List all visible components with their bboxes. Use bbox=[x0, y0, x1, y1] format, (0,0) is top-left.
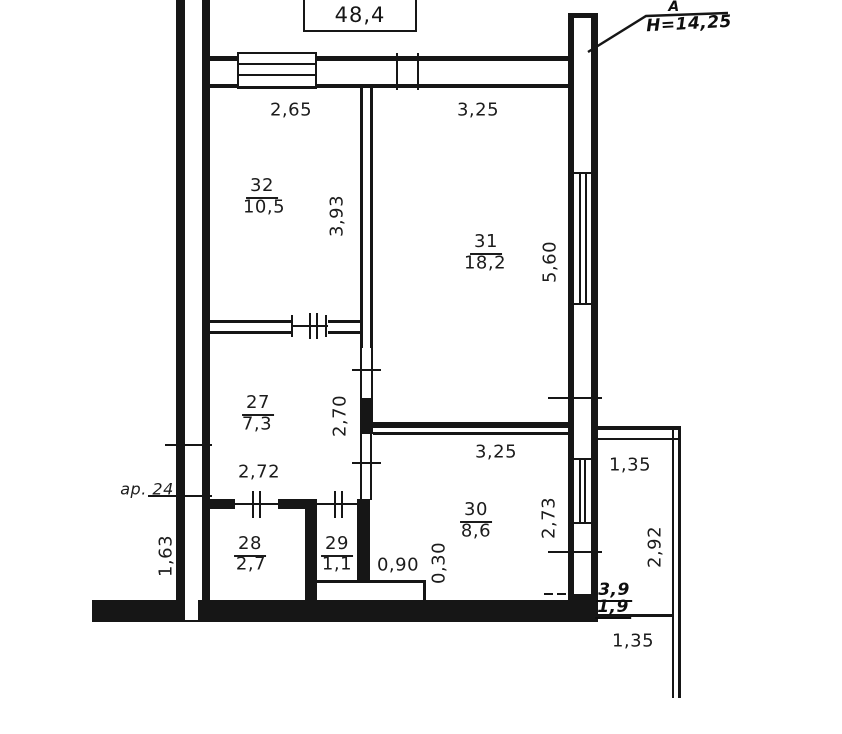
dim-room27-width: 2,72 bbox=[238, 462, 280, 483]
right-window-upper bbox=[574, 172, 591, 305]
room-30-number: 30 bbox=[460, 499, 492, 523]
wall-joint-gap bbox=[185, 600, 198, 620]
dim-balcony-depth: 2,92 bbox=[645, 526, 666, 568]
room-28-area: 2,7 bbox=[236, 554, 266, 575]
dim-room27-depth: 2,70 bbox=[330, 395, 351, 437]
room-30-area: 8,6 bbox=[461, 521, 491, 542]
room-31-number: 31 bbox=[470, 231, 502, 255]
dim-niche-depth: 0,30 bbox=[429, 542, 450, 584]
wall-31-30 bbox=[360, 422, 568, 435]
dim-room30-width: 3,25 bbox=[475, 442, 517, 463]
dim-room31-width: 3,25 bbox=[457, 100, 499, 121]
interior-walls bbox=[203, 88, 373, 334]
dim-entry-wall: 1,63 bbox=[156, 535, 177, 577]
total-area-box: 48,4 bbox=[303, 0, 417, 32]
dim-balcony-width-bottom: 1,35 bbox=[612, 631, 654, 652]
balcony-area-reduced: 1,9 bbox=[595, 599, 631, 619]
total-area-value: 48,4 bbox=[335, 3, 386, 27]
room-32-number: 32 bbox=[246, 175, 278, 199]
floorplan-drawing bbox=[0, 0, 842, 734]
door-32-27 bbox=[291, 313, 328, 339]
dim-room30-depth: 2,73 bbox=[539, 497, 560, 539]
room-32-area: 10,5 bbox=[243, 197, 285, 218]
section-letter: A bbox=[668, 0, 679, 15]
apartment-entry-note: ap. 24 bbox=[120, 480, 174, 499]
dim-room32-depth: 3,93 bbox=[327, 195, 348, 237]
room-29-area: 1,1 bbox=[322, 554, 352, 575]
wall-27-right bbox=[352, 334, 381, 500]
room-27-number: 27 bbox=[242, 392, 274, 416]
room-27-area: 7,3 bbox=[242, 414, 272, 435]
room-31-area: 18,2 bbox=[464, 253, 506, 274]
dim-balcony-width: 1,35 bbox=[609, 455, 651, 476]
floor-plan: 48,4 A H=14,25 32 10,5 31 18,2 27 7,3 30… bbox=[0, 0, 842, 734]
right-window-lower bbox=[574, 458, 591, 524]
outer-walls bbox=[92, 0, 598, 622]
dim-room31-depth: 5,60 bbox=[540, 241, 561, 283]
dim-niche-width: 0,90 bbox=[377, 555, 419, 576]
top-window bbox=[237, 52, 317, 89]
dim-room32-width: 2,65 bbox=[270, 100, 312, 121]
